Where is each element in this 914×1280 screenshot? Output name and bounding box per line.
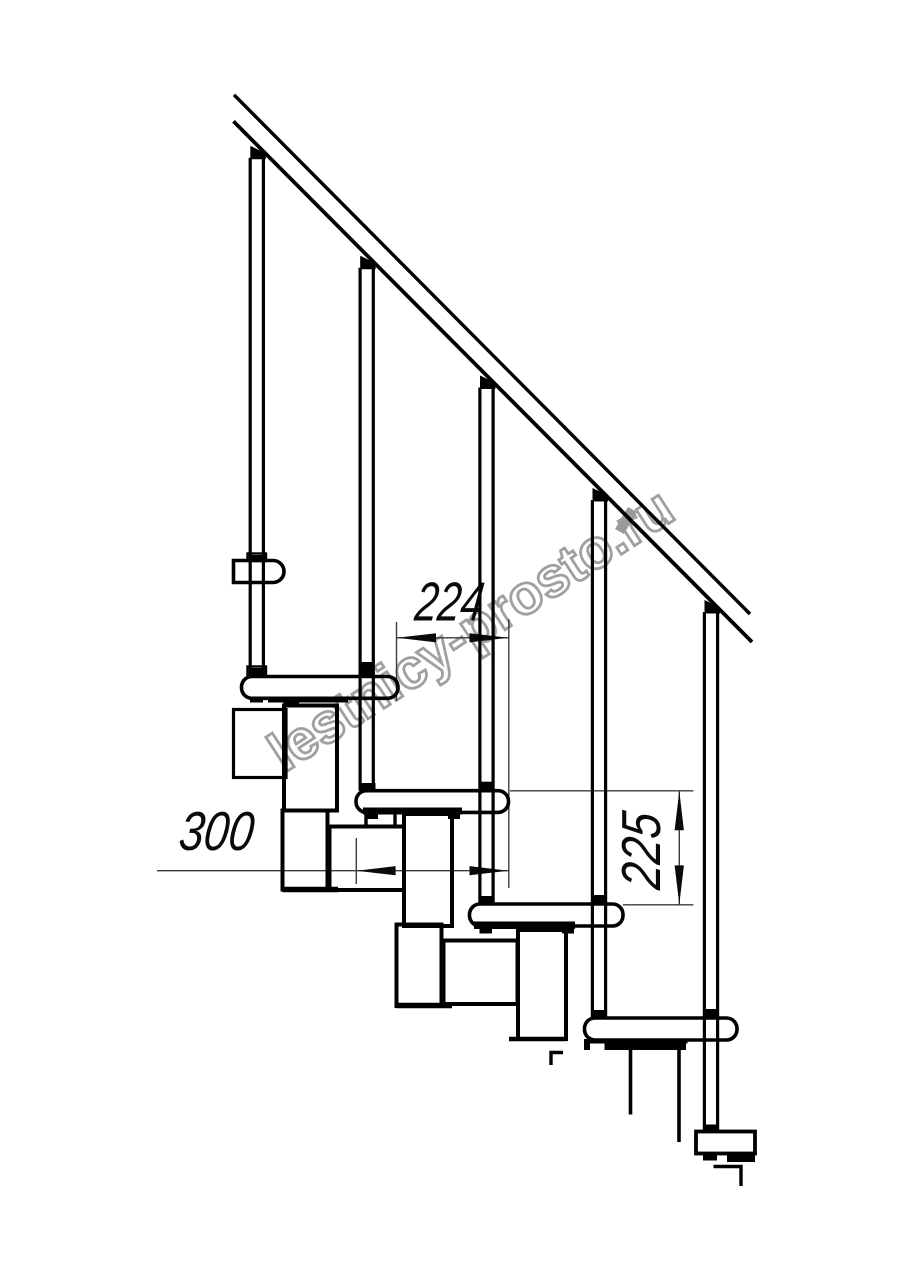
svg-text:224: 224 [411,571,487,633]
svg-text:225: 225 [610,808,672,893]
svg-text:300: 300 [176,800,258,862]
